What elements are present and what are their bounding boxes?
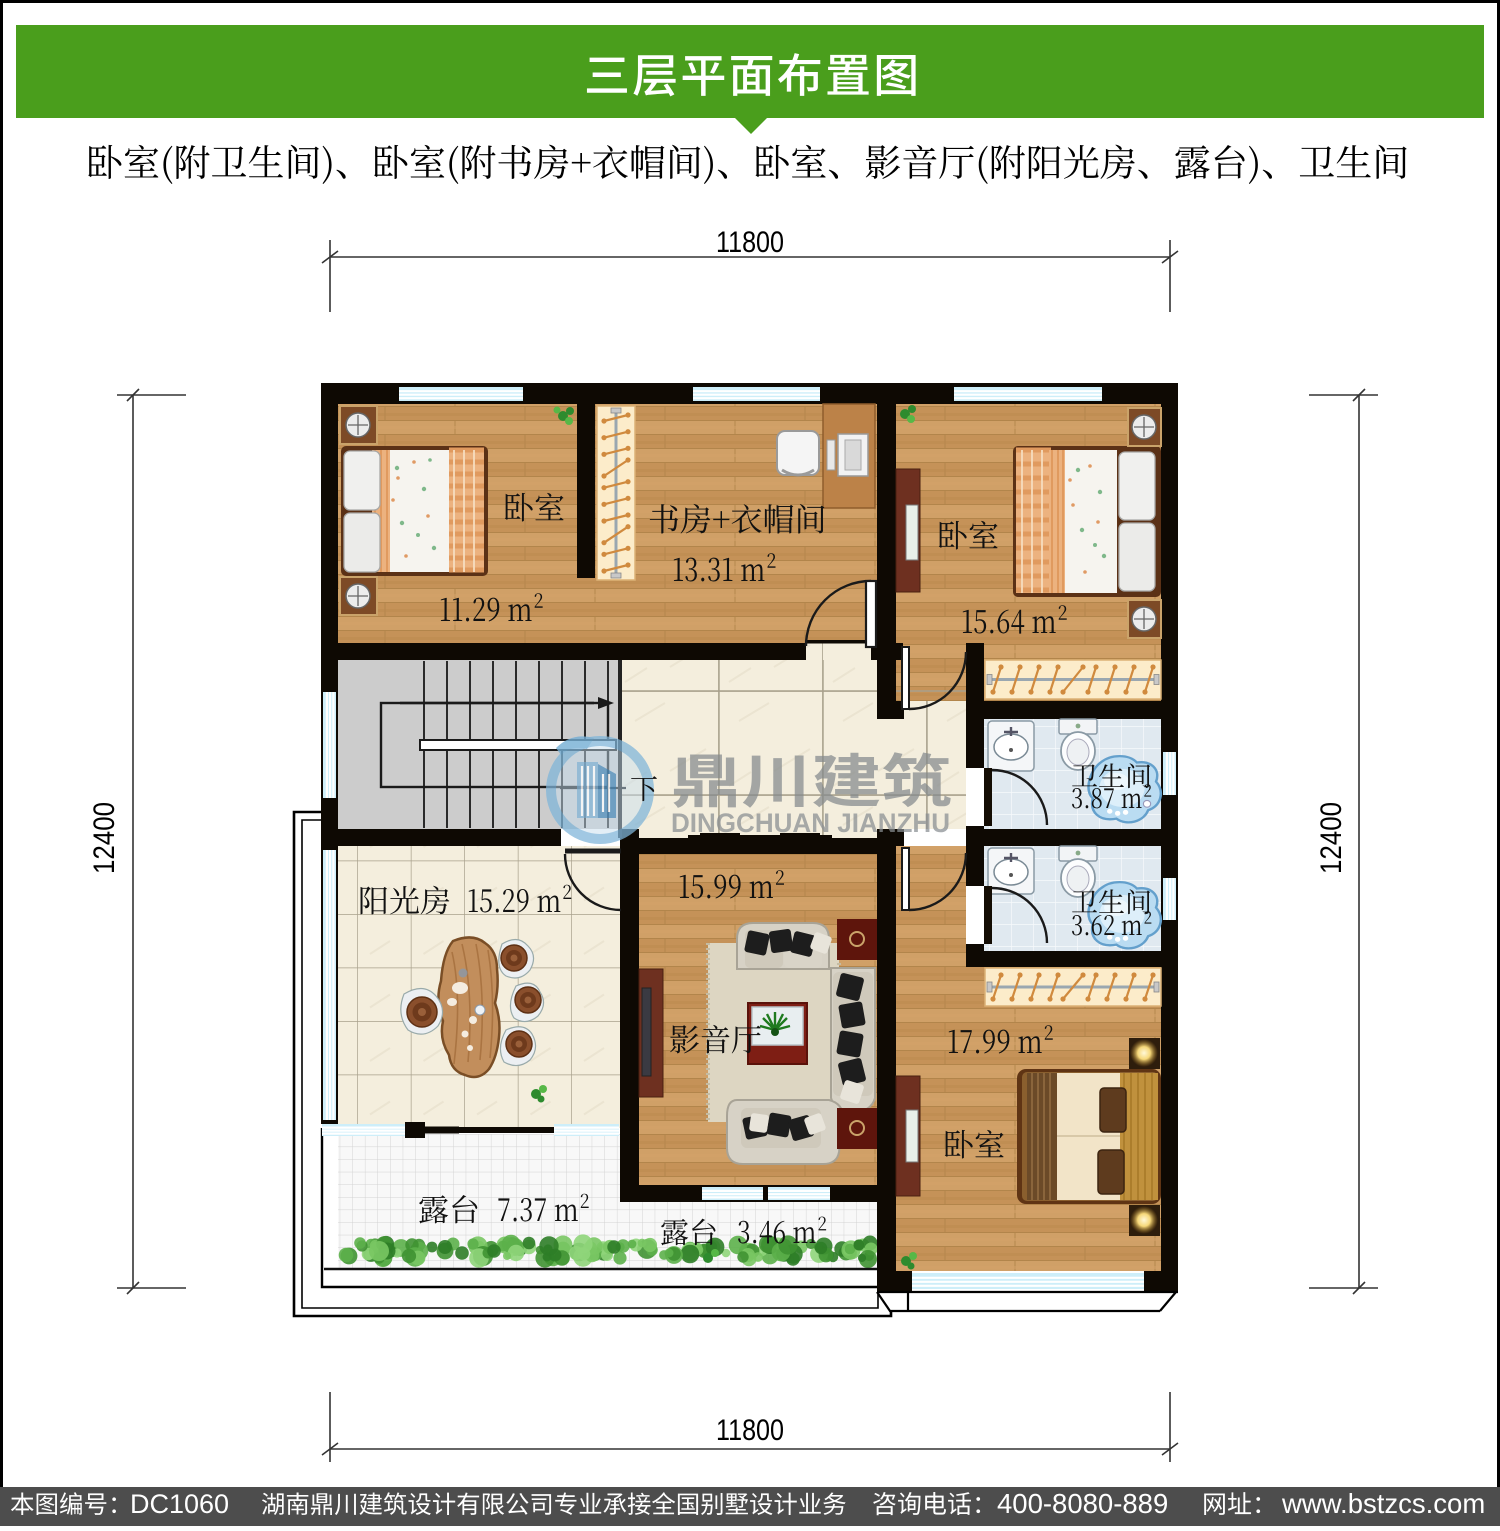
svg-text:11800: 11800: [716, 226, 784, 259]
svg-text:www.bstzcs.com: www.bstzcs.com: [1281, 1488, 1485, 1519]
svg-text:11800: 11800: [716, 1414, 784, 1447]
svg-text:DC1060: DC1060: [130, 1489, 229, 1519]
svg-text:DINGCHUAN JIANZHU: DINGCHUAN JIANZHU: [671, 808, 950, 838]
svg-text:400-8080-889: 400-8080-889: [997, 1488, 1168, 1519]
svg-text:12400: 12400: [88, 802, 121, 874]
svg-text:12400: 12400: [1315, 802, 1348, 874]
